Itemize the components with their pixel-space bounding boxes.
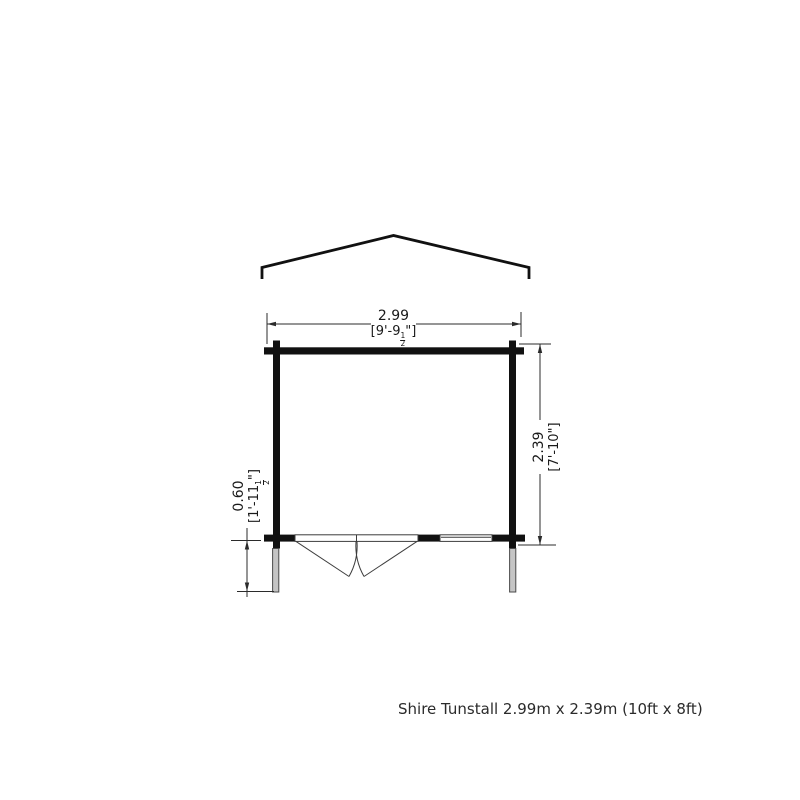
- dimension-arrow: [512, 322, 521, 326]
- wall-right: [509, 341, 516, 549]
- post-left: [273, 549, 279, 593]
- width-metric-value: 2.99: [371, 309, 417, 324]
- product-caption: Shire Tunstall 2.99m x 2.39m (10ft x 8ft…: [398, 699, 703, 719]
- wall-top: [264, 347, 524, 354]
- dimension-arrow: [538, 344, 542, 353]
- overhang-dimension-label: 0.60 [1'-1112"]: [232, 469, 270, 523]
- window: [440, 535, 492, 542]
- depth-metric-value: 2.39: [532, 422, 547, 471]
- width-dimension-label: 2.99 [9'-912"]: [371, 309, 417, 347]
- dimension-arrow: [245, 541, 249, 550]
- canopy-posts: [273, 549, 516, 593]
- overhang-imperial-value: [1'-1112"]: [247, 469, 270, 523]
- door-leaf-right: [364, 541, 417, 576]
- double-door: [295, 535, 418, 577]
- wall-left: [273, 341, 280, 549]
- walls: [264, 341, 525, 549]
- post-right: [510, 549, 516, 593]
- wall-bottom-right-segment: [492, 535, 525, 542]
- overhang-metric-value: 0.60: [232, 469, 247, 523]
- floor-plan-drawing: [0, 0, 800, 800]
- wall-bottom-left-segment: [264, 535, 295, 542]
- dimension-arrow: [245, 583, 249, 592]
- window-frame: [440, 535, 492, 542]
- width-imperial-value: [9'-912"]: [371, 324, 417, 347]
- depth-imperial-value: [7'-10"]: [547, 422, 562, 471]
- depth-dimension-label: 2.39 [7'-10"]: [532, 422, 562, 471]
- door-leaf-left: [296, 541, 349, 576]
- overhang-fraction: 12: [256, 480, 270, 485]
- roof-outline: [262, 236, 529, 280]
- dimension-arrow: [267, 322, 276, 326]
- wall-bottom-middle-segment: [418, 535, 440, 542]
- dimension-arrow: [538, 536, 542, 545]
